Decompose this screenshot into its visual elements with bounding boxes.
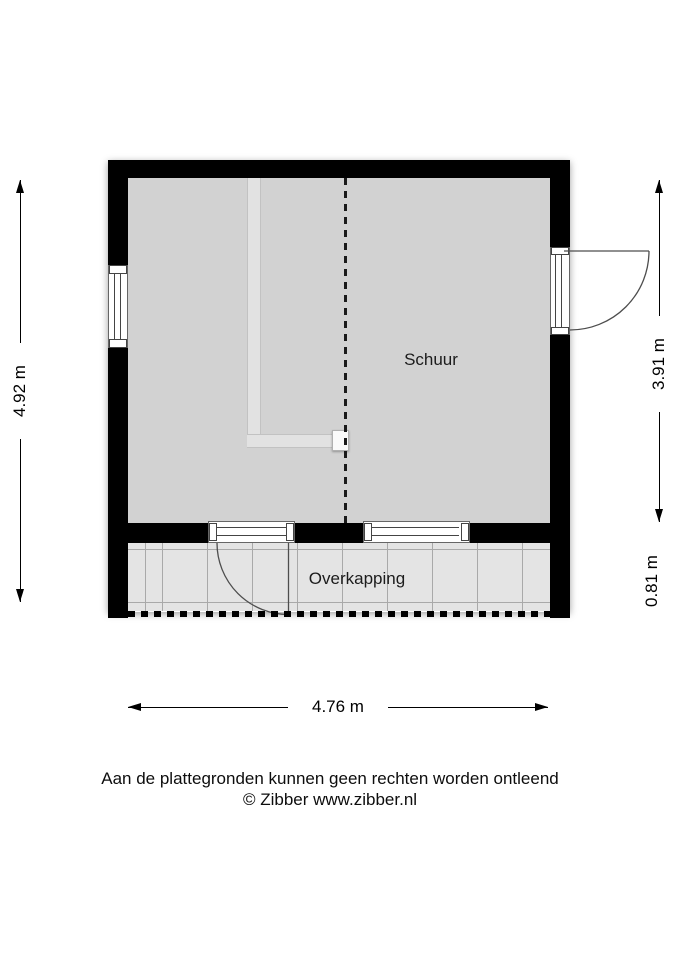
arrow-down-icon — [655, 509, 663, 522]
right-door-swing-arc — [570, 251, 649, 330]
room-label-schuur: Schuur — [381, 350, 481, 370]
overkapping-open-edge-dashed — [128, 611, 550, 617]
footer: Aan de plattegronden kunnen geen rechten… — [0, 768, 660, 810]
arrow-right-icon — [535, 703, 548, 711]
footer-disclaimer: Aan de plattegronden kunnen geen rechten… — [0, 768, 660, 789]
arrow-down-icon — [16, 589, 24, 602]
dimension-bottom-label: 4.76 m — [288, 696, 388, 718]
door-swing-overlay — [0, 0, 679, 960]
arrow-up-icon — [16, 180, 24, 193]
arrow-up-icon — [655, 180, 663, 193]
inner-door-swing-arc — [217, 543, 289, 615]
dimension-left-label: 4.92 m — [9, 343, 31, 439]
arrow-left-icon — [128, 703, 141, 711]
footer-copyright: © Zibber www.zibber.nl — [0, 789, 660, 810]
dimension-right-upper-label: 3.91 m — [648, 316, 670, 412]
room-label-overkapping: Overkapping — [287, 569, 427, 589]
dimension-right-lower-label: 0.81 m — [641, 533, 663, 629]
